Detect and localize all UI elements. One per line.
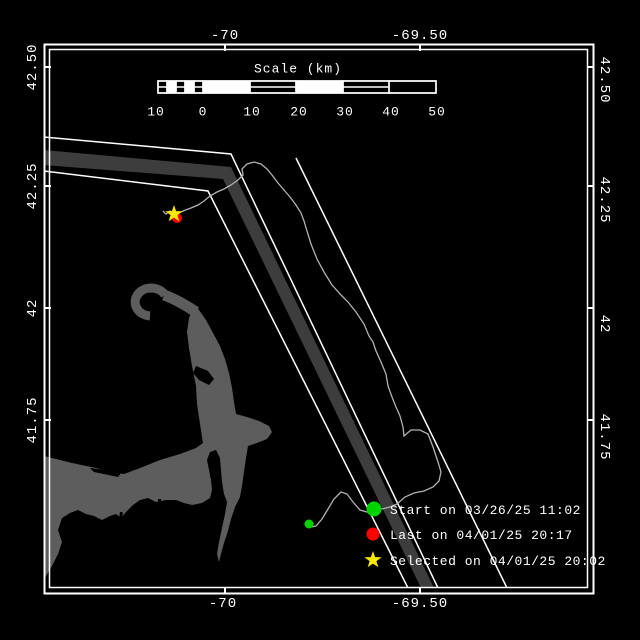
provincetown-curl bbox=[135, 288, 165, 316]
axis-label-right-lat3: 42 bbox=[596, 315, 612, 334]
axis-label-right-lat2: 42.25 bbox=[596, 176, 612, 223]
scale-label-2: 10 bbox=[243, 105, 261, 120]
legend-label-selected: Selected on 04/01/25 20:02 bbox=[390, 554, 606, 569]
axis-label-bottom-lon1: -70 bbox=[209, 596, 237, 612]
legend-yellow-star bbox=[364, 551, 381, 567]
axis-label-bottom-lon2: -69.50 bbox=[392, 596, 448, 612]
scale-label-5: 40 bbox=[382, 105, 400, 120]
axis-label-left-lat1: 42.50 bbox=[25, 43, 41, 90]
map-graphics bbox=[0, 0, 640, 640]
legend-green-dot bbox=[367, 502, 382, 517]
axis-label-left-lat2: 42.25 bbox=[25, 162, 41, 209]
legend-label-last: Last on 04/01/25 20:17 bbox=[390, 528, 573, 543]
scale-label-1: 0 bbox=[199, 105, 208, 120]
legend-label-start: Start on 03/26/25 11:02 bbox=[390, 503, 581, 518]
start-marker[interactable] bbox=[305, 520, 314, 529]
scale-bar bbox=[158, 81, 436, 93]
legend-red-dot bbox=[367, 528, 380, 541]
scale-label-3: 20 bbox=[290, 105, 308, 120]
cape-cod-landmass bbox=[44, 288, 272, 582]
shipping-lane-lines bbox=[44, 137, 507, 588]
scale-bar-title: Scale (km) bbox=[254, 62, 342, 77]
axis-label-left-lat3: 42 bbox=[25, 299, 41, 318]
map-canvas: -70 -69.50 -70 -69.50 42.50 42.25 42 41.… bbox=[0, 0, 640, 640]
axis-label-right-lat4: 41.75 bbox=[596, 413, 612, 460]
legend-markers bbox=[364, 502, 381, 568]
scale-label-4: 30 bbox=[336, 105, 354, 120]
provincetown-hook bbox=[164, 295, 196, 312]
axis-label-top-lon1: -70 bbox=[211, 28, 239, 44]
axis-label-right-lat1: 42.50 bbox=[596, 56, 612, 103]
axis-label-left-lat4: 41.75 bbox=[25, 396, 41, 443]
scale-label-6: 50 bbox=[428, 105, 446, 120]
scale-label-0: 10 bbox=[147, 105, 165, 120]
axis-label-top-lon2: -69.50 bbox=[392, 28, 448, 44]
